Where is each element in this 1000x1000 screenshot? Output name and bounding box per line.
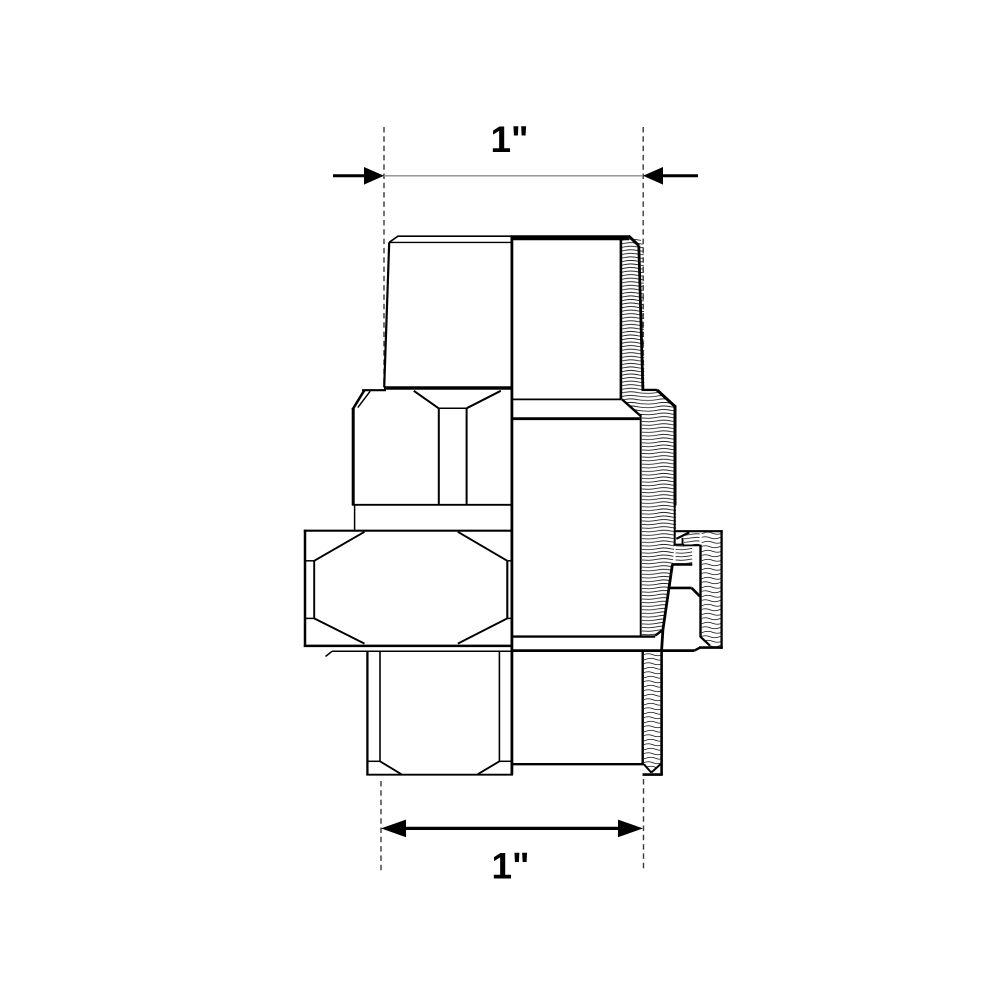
svg-text:1": 1" [490,119,528,160]
svg-text:1": 1" [491,846,529,887]
